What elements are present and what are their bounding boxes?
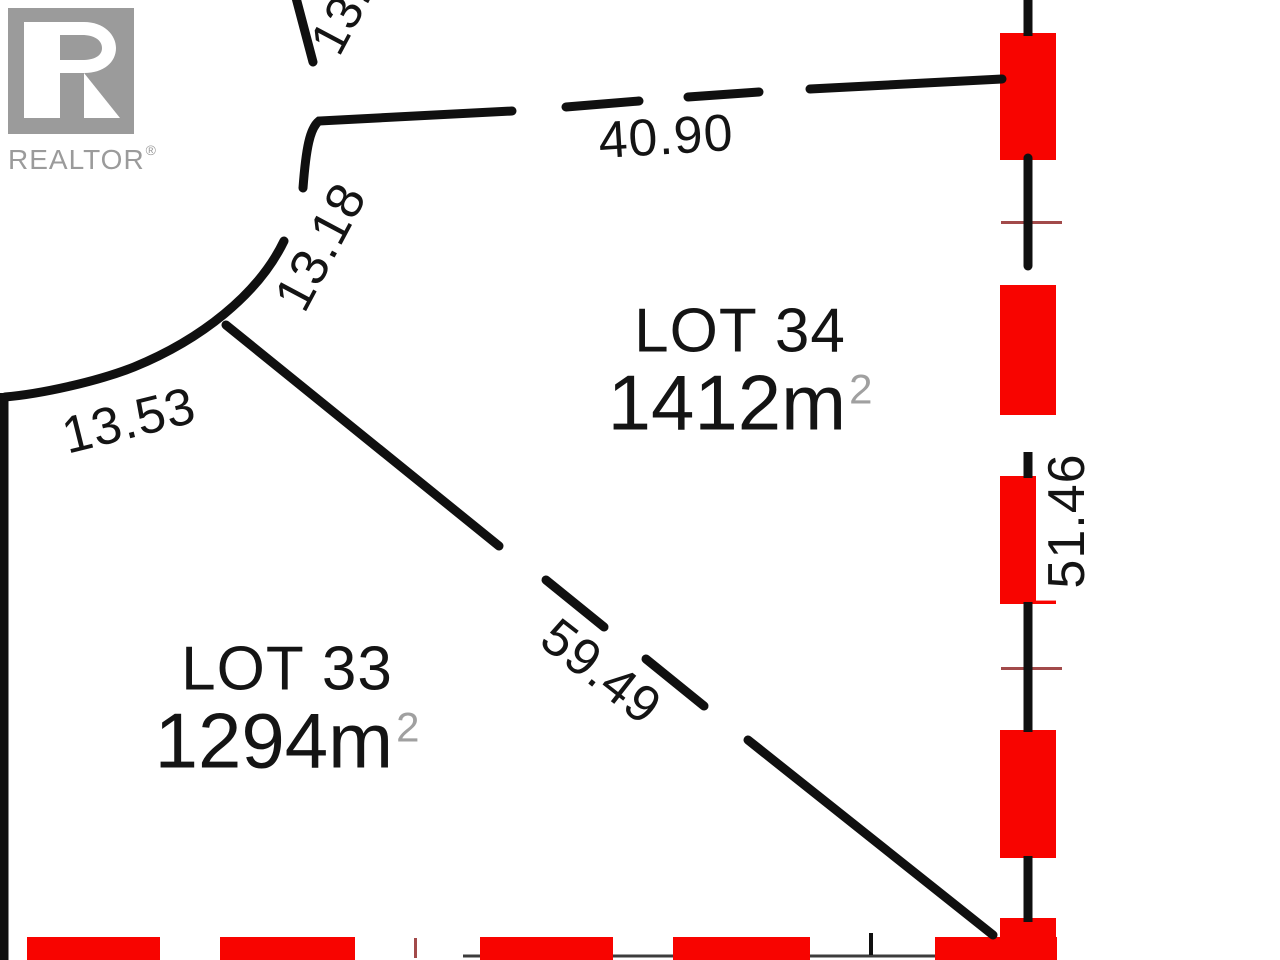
lot-34-area-exponent: 2 — [849, 366, 872, 413]
lot-34-area: 1412m2 — [608, 364, 873, 442]
dim-east-boundary: 51.46 — [1036, 441, 1098, 600]
south-tick-1 — [414, 938, 417, 958]
lot-33-name: LOT 33 — [181, 636, 393, 701]
realtor-logo-text: REALTOR® — [8, 142, 158, 176]
diagonal-boundary-solid-upper — [226, 325, 499, 546]
north-corner-segment — [303, 111, 512, 188]
lot-33-area-exponent: 2 — [396, 704, 419, 751]
culdesac-curve — [5, 241, 284, 397]
south-marker-1 — [27, 937, 160, 960]
south-marker-2 — [220, 937, 355, 960]
south-marker-4 — [673, 937, 810, 960]
east-marker-2 — [1000, 285, 1056, 415]
lot-34-name: LOT 34 — [634, 298, 846, 363]
plat-map: REALTOR® 13. 40.90 13.18 13.53 59.49 51.… — [0, 0, 1280, 960]
realtor-wordmark: REALTOR — [8, 144, 145, 175]
registered-mark: ® — [146, 142, 157, 158]
realtor-logo-icon — [8, 8, 134, 134]
lot-33-area: 1294m2 — [155, 702, 420, 780]
north-dash-1 — [566, 101, 639, 107]
dim-north-boundary: 40.90 — [597, 107, 735, 167]
lot-33-label: LOT 33 1294m2 — [155, 636, 420, 779]
lot-34-label: LOT 34 1412m2 — [608, 298, 873, 441]
north-dash-2 — [688, 92, 759, 97]
diagonal-boundary-solid-lower — [748, 740, 993, 935]
east-marker-1 — [1000, 33, 1056, 160]
east-marker-4 — [1000, 730, 1056, 858]
lot-33-area-value: 1294m — [155, 697, 394, 785]
lot-34-area-value: 1412m — [608, 359, 847, 447]
realtor-logo: REALTOR® — [8, 8, 158, 176]
south-marker-3 — [480, 937, 613, 960]
south-marker-corner — [935, 937, 1057, 960]
north-dash-3 — [810, 79, 1002, 89]
south-tick-2 — [869, 933, 873, 955]
